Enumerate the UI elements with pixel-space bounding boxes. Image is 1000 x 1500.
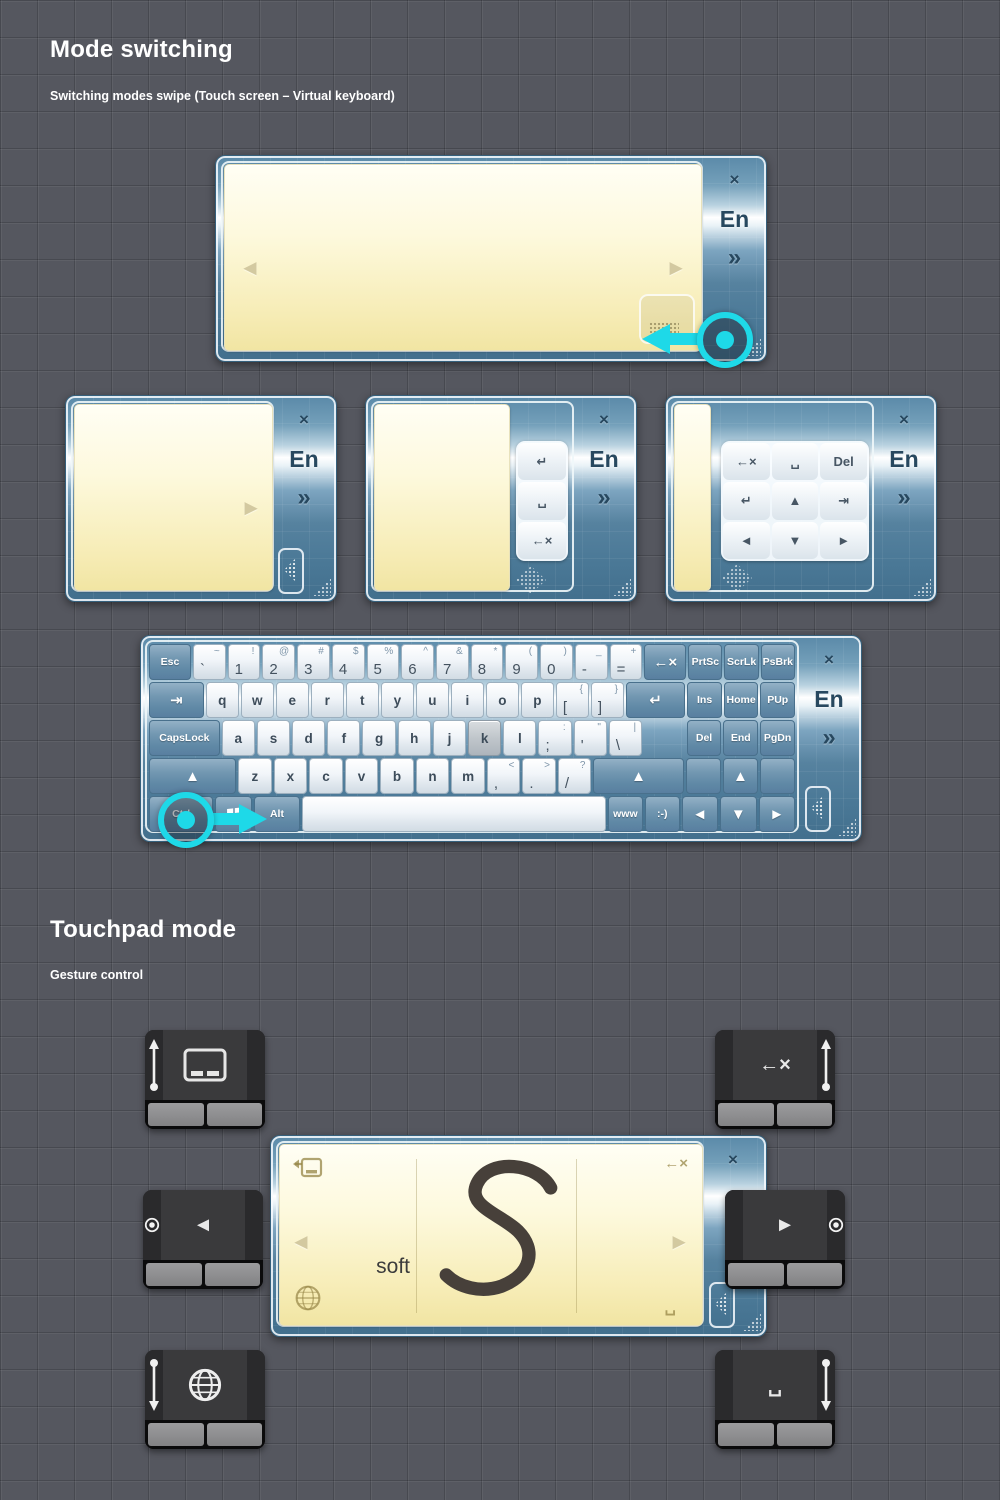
- section-title-touchpad-mode: Touchpad mode: [50, 916, 236, 944]
- expand-button[interactable]: »: [878, 484, 930, 512]
- key-shift-right[interactable]: ▲: [593, 758, 683, 794]
- key-w[interactable]: w: [241, 682, 274, 718]
- mini-key-up[interactable]: ▲: [772, 482, 819, 519]
- space-hint[interactable]: ␣: [665, 1297, 676, 1317]
- drag-handle[interactable]: [709, 1282, 735, 1328]
- mini-key-delete[interactable]: Del: [820, 443, 867, 480]
- key-e[interactable]: e: [276, 682, 309, 718]
- key-1[interactable]: 1!: [228, 644, 261, 680]
- swipe-left-arrow: [640, 322, 702, 361]
- right-click-button[interactable]: [777, 1423, 833, 1446]
- key-n[interactable]: n: [416, 758, 450, 794]
- panel-handwriting: ←× ◄ ► ␣ soft ×: [270, 1135, 767, 1337]
- close-button[interactable]: ×: [878, 410, 930, 430]
- key-psbrk[interactable]: PsBrk: [761, 644, 795, 680]
- next-arrow[interactable]: ►: [668, 1231, 690, 1253]
- touchpad-left-edge[interactable]: [715, 1030, 733, 1100]
- panel-keyboard-collapsed: ◄ ► × En »: [215, 155, 767, 362]
- backspace-hint[interactable]: ←×: [664, 1155, 688, 1172]
- close-button[interactable]: ×: [278, 410, 330, 430]
- key-bracket-open[interactable]: [{: [556, 682, 589, 718]
- key-arrow-up[interactable]: ▲: [723, 758, 758, 794]
- key-6[interactable]: 6^: [401, 644, 434, 680]
- key-end[interactable]: End: [723, 720, 758, 756]
- touchpad-right-edge[interactable]: [245, 1190, 263, 1260]
- tap-indicator: [827, 1212, 845, 1238]
- mini-key-enter[interactable]: ↵: [723, 482, 770, 519]
- key-d[interactable]: d: [292, 720, 325, 756]
- key-3[interactable]: 3#: [297, 644, 330, 680]
- touchpad-left-edge[interactable]: [725, 1190, 743, 1260]
- key-capslock[interactable]: CapsLock: [149, 720, 220, 756]
- key-equals[interactable]: =+: [610, 644, 643, 680]
- key-minus[interactable]: -_: [575, 644, 608, 680]
- tap-indicator: [143, 1212, 161, 1238]
- ink-stroke-s: [436, 1157, 564, 1318]
- language-button[interactable]: En: [878, 446, 930, 473]
- key-v[interactable]: v: [345, 758, 379, 794]
- language-button[interactable]: En: [707, 206, 762, 233]
- key-4[interactable]: 4$: [332, 644, 365, 680]
- key-del[interactable]: Del: [687, 720, 722, 756]
- key-m[interactable]: m: [451, 758, 485, 794]
- handwriting-area[interactable]: ►: [74, 404, 273, 591]
- swipe-down-indicator: [147, 1358, 161, 1412]
- expand-button[interactable]: »: [278, 484, 330, 512]
- touchpad-surface[interactable]: ←×: [715, 1030, 835, 1100]
- gesture-result-icon: [163, 1030, 247, 1100]
- key-enter[interactable]: ↵: [626, 682, 685, 718]
- left-click-button[interactable]: [718, 1103, 774, 1126]
- panel-mini-key-column: ↵␣←× × En »: [365, 395, 637, 602]
- left-click-button[interactable]: [728, 1263, 784, 1286]
- resize-grip[interactable]: [838, 818, 856, 836]
- touchpad-left-edge[interactable]: [145, 1030, 163, 1100]
- mini-key-grid: ←×␣Del↵▲⇥◄▼►: [721, 441, 869, 561]
- key-y[interactable]: y: [381, 682, 414, 718]
- expand-button[interactable]: »: [707, 244, 762, 272]
- key-pgdn[interactable]: PgDn: [760, 720, 795, 756]
- touchpad-surface[interactable]: ◄: [143, 1190, 263, 1260]
- key-k[interactable]: k: [468, 720, 501, 756]
- mini-key-space[interactable]: ␣: [772, 443, 819, 480]
- touchpad-right-edge[interactable]: [817, 1350, 835, 1420]
- next-arrow[interactable]: ►: [240, 497, 262, 519]
- close-button[interactable]: ×: [803, 650, 855, 670]
- globe-icon: [187, 1367, 223, 1403]
- touchpad-surface[interactable]: ␣: [715, 1350, 835, 1420]
- section-subtitle-mode-switching: Switching modes swipe (Touch screen – Vi…: [50, 89, 395, 103]
- prev-arrow[interactable]: ◄: [290, 1231, 312, 1253]
- swipe-down-indicator: [819, 1358, 833, 1412]
- panel-full-keyboard: Esc`~1!2@3#4$5%6^7&8*9(0)-_=+←×PrtScScrL…: [140, 635, 862, 842]
- touchpad-right-edge[interactable]: [817, 1030, 835, 1100]
- column-divider: [576, 1159, 577, 1313]
- left-click-button[interactable]: [148, 1423, 204, 1446]
- mini-key-column: ↵␣←×: [516, 441, 568, 561]
- resize-grip[interactable]: [313, 578, 331, 596]
- panel-mini-key-grid: ←×␣Del↵▲⇥◄▼► × En »: [665, 395, 937, 602]
- section-title-mode-switching: Mode switching: [50, 36, 233, 64]
- touchpad-left-edge[interactable]: [143, 1190, 161, 1260]
- key-tab[interactable]: ⇥: [149, 682, 204, 718]
- touchpad-surface[interactable]: [145, 1030, 265, 1100]
- left-click-button[interactable]: [146, 1263, 202, 1286]
- section-subtitle-touchpad-mode: Gesture control: [50, 968, 143, 982]
- handwriting-area[interactable]: [374, 404, 510, 591]
- language-button[interactable]: En: [578, 446, 630, 473]
- key-period[interactable]: .>: [522, 758, 556, 794]
- touchpad-left-edge[interactable]: [715, 1350, 733, 1420]
- key-0[interactable]: 0): [540, 644, 573, 680]
- column-divider: [416, 1159, 417, 1313]
- key-pup[interactable]: PUp: [760, 682, 795, 718]
- drag-handle[interactable]: [805, 786, 831, 832]
- mini-key-backspace[interactable]: ←×: [723, 443, 770, 480]
- key-c[interactable]: c: [309, 758, 343, 794]
- key-slash[interactable]: /?: [558, 758, 592, 794]
- right-click-button[interactable]: [777, 1103, 833, 1126]
- panel-mini-plain: ► × En »: [65, 395, 337, 602]
- key-scrlk[interactable]: ScrLk: [724, 644, 758, 680]
- prev-arrow[interactable]: ◄: [239, 257, 261, 279]
- resize-grip[interactable]: [913, 578, 931, 596]
- key-z[interactable]: z: [238, 758, 272, 794]
- touchpad-surface[interactable]: ►: [725, 1190, 845, 1260]
- swipe-up-indicator: [147, 1038, 161, 1092]
- touchpad-left-edge[interactable]: [145, 1350, 163, 1420]
- key-u[interactable]: u: [416, 682, 449, 718]
- key-i[interactable]: i: [451, 682, 484, 718]
- mini-key-backspace[interactable]: ←×: [518, 522, 566, 559]
- key-7[interactable]: 7&: [436, 644, 469, 680]
- mini-key-space[interactable]: ␣: [518, 482, 566, 519]
- key-home[interactable]: Home: [724, 682, 759, 718]
- right-click-button[interactable]: [205, 1263, 261, 1286]
- handwriting-area[interactable]: ◄ ►: [224, 164, 702, 351]
- gesture-result-icon: ←×: [733, 1030, 817, 1100]
- right-click-button[interactable]: [207, 1103, 263, 1126]
- key-shift-left[interactable]: ▲: [149, 758, 236, 794]
- key-t[interactable]: t: [346, 682, 379, 718]
- key-q[interactable]: q: [206, 682, 239, 718]
- key-backtick[interactable]: `~: [193, 644, 226, 680]
- touchpad-right-edge[interactable]: [247, 1350, 265, 1420]
- left-click-button[interactable]: [718, 1423, 774, 1446]
- handwriting-area[interactable]: [674, 404, 711, 591]
- key-9[interactable]: 9(: [505, 644, 538, 680]
- key-arrow-right[interactable]: ►: [759, 796, 795, 832]
- key-smiley[interactable]: :-): [645, 796, 680, 832]
- key-prtsc[interactable]: PrtSc: [688, 644, 722, 680]
- key-p[interactable]: p: [521, 682, 554, 718]
- close-button[interactable]: ×: [707, 170, 762, 190]
- close-button[interactable]: ×: [578, 410, 630, 430]
- key-spacebar[interactable]: [302, 796, 606, 832]
- next-arrow[interactable]: ►: [665, 257, 687, 279]
- key-www[interactable]: www: [608, 796, 643, 832]
- mini-key-left[interactable]: ◄: [723, 522, 770, 559]
- touch-point: [697, 312, 753, 368]
- mini-key-tab[interactable]: ⇥: [820, 482, 867, 519]
- language-button[interactable]: En: [803, 686, 855, 713]
- key-r[interactable]: r: [311, 682, 344, 718]
- close-button[interactable]: ×: [707, 1150, 759, 1170]
- touchpad-right-edge[interactable]: [247, 1030, 265, 1100]
- key-a[interactable]: a: [222, 720, 255, 756]
- handwriting-area[interactable]: ←× ◄ ► ␣ soft: [279, 1144, 703, 1326]
- key-x[interactable]: x: [274, 758, 308, 794]
- resize-grip[interactable]: [743, 1313, 761, 1331]
- expand-button[interactable]: »: [578, 484, 630, 512]
- touchpad-gesture-next[interactable]: ►: [725, 1190, 845, 1289]
- key-esc[interactable]: Esc: [149, 644, 191, 680]
- key-arrow-down[interactable]: ▼: [720, 796, 756, 832]
- key-o[interactable]: o: [486, 682, 519, 718]
- touchpad-gesture-language[interactable]: [145, 1350, 265, 1449]
- key-2[interactable]: 2@: [262, 644, 295, 680]
- language-button[interactable]: En: [278, 446, 330, 473]
- mini-key-right[interactable]: ►: [820, 522, 867, 559]
- key-8[interactable]: 8*: [471, 644, 504, 680]
- gesture-result-icon: [163, 1350, 247, 1420]
- key-b[interactable]: b: [380, 758, 414, 794]
- left-click-button[interactable]: [148, 1103, 204, 1126]
- key-arrow-left[interactable]: ◄: [682, 796, 718, 832]
- key-5[interactable]: 5%: [367, 644, 400, 680]
- key-s[interactable]: s: [257, 720, 290, 756]
- key-g[interactable]: g: [362, 720, 395, 756]
- touchpad-gesture-previous[interactable]: ◄: [143, 1190, 263, 1289]
- gesture-result-icon: ␣: [733, 1350, 817, 1420]
- exit-touchpad-icon[interactable]: [292, 1155, 324, 1186]
- touch-point: [158, 792, 214, 848]
- swipe-right-arrow: [207, 802, 269, 841]
- key-blank-right[interactable]: [760, 758, 795, 794]
- collapse-button[interactable]: »: [803, 724, 855, 752]
- key-backslash[interactable]: \|: [609, 720, 642, 756]
- right-click-button[interactable]: [207, 1423, 263, 1446]
- key-blank-left[interactable]: [686, 758, 721, 794]
- key-l[interactable]: l: [503, 720, 536, 756]
- key-h[interactable]: h: [398, 720, 431, 756]
- resize-grip[interactable]: [613, 578, 631, 596]
- language-globe-icon[interactable]: [294, 1284, 322, 1317]
- gesture-result-icon: ►: [743, 1190, 827, 1260]
- swipe-up-indicator: [819, 1038, 833, 1092]
- key-semicolon[interactable]: ;:: [538, 720, 571, 756]
- key-f[interactable]: f: [327, 720, 360, 756]
- touchpad-right-edge[interactable]: [827, 1190, 845, 1260]
- key-comma[interactable]: ,<: [487, 758, 521, 794]
- touchpad-gesture-touchpad-mode[interactable]: [145, 1030, 265, 1129]
- touchpad-gesture-space[interactable]: ␣: [715, 1350, 835, 1449]
- touchpad-icon: [183, 1048, 227, 1082]
- key-backspace[interactable]: ←×: [644, 644, 686, 680]
- key-quote[interactable]: '": [574, 720, 607, 756]
- drag-handle[interactable]: [278, 548, 304, 594]
- touchpad-gesture-backspace[interactable]: ←×: [715, 1030, 835, 1129]
- gesture-result-icon: ◄: [161, 1190, 245, 1260]
- key-bracket-close[interactable]: ]}: [591, 682, 624, 718]
- right-click-button[interactable]: [787, 1263, 843, 1286]
- key-spacer: [644, 720, 685, 756]
- touchpad-surface[interactable]: [145, 1350, 265, 1420]
- mini-key-enter[interactable]: ↵: [518, 443, 566, 480]
- key-j[interactable]: j: [433, 720, 466, 756]
- mini-key-down[interactable]: ▼: [772, 522, 819, 559]
- key-ins[interactable]: Ins: [687, 682, 722, 718]
- recognized-word[interactable]: soft: [318, 1255, 410, 1279]
